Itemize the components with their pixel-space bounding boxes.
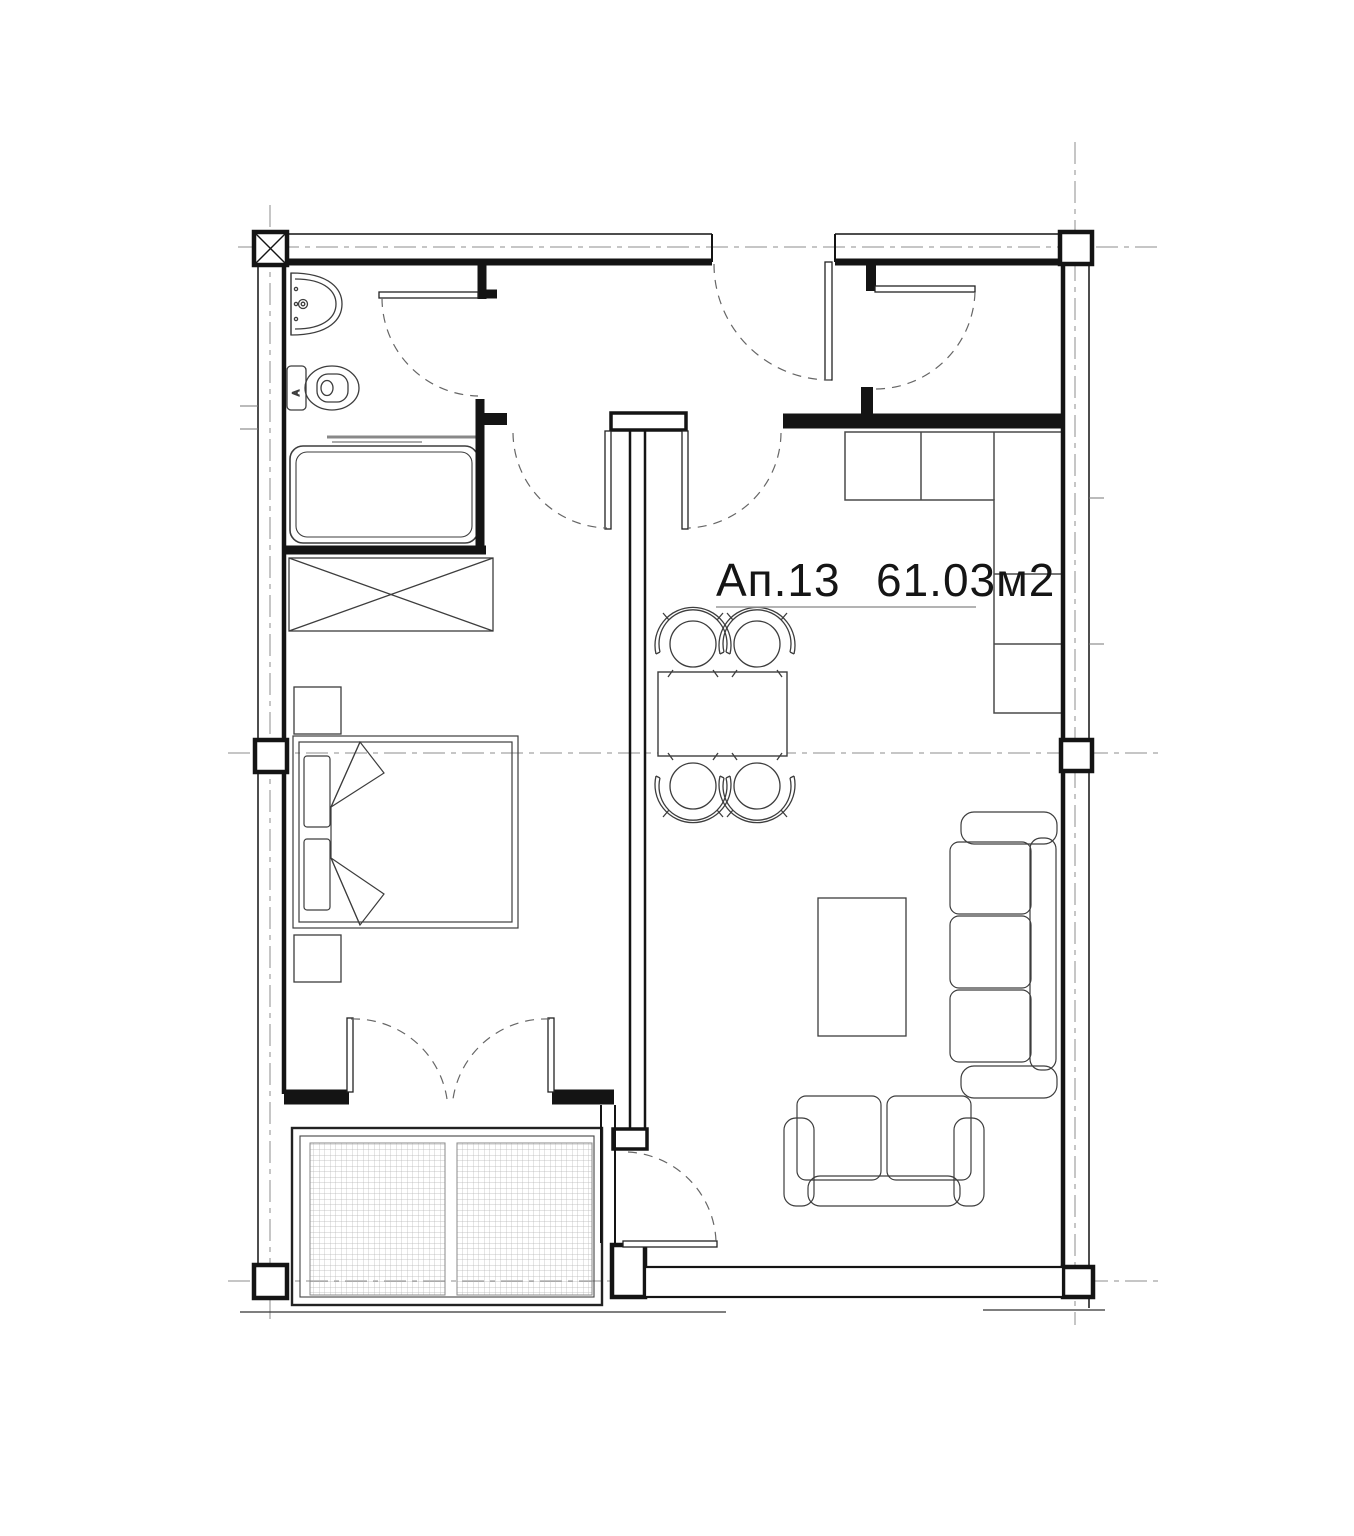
double-bed — [293, 736, 518, 928]
living-room-door-leaf — [682, 431, 688, 529]
area-label: 61.03м2 — [876, 554, 1055, 606]
column-bottom-right — [1063, 1267, 1093, 1297]
column-mid-left — [255, 740, 287, 772]
bedroom-door-leaf — [605, 431, 611, 529]
apartment-label: Ап.13 — [716, 554, 841, 606]
nightstand-bottom — [294, 935, 341, 982]
french-door-leaf-right — [548, 1018, 554, 1092]
column-mid-right — [1061, 740, 1092, 771]
dining-table — [658, 672, 787, 756]
entry-door-leaf — [825, 262, 832, 380]
floor-plan-page: A — [0, 0, 1354, 1536]
floor-plan-drawing: A — [0, 0, 1354, 1536]
nightstand-top — [294, 687, 341, 734]
column-top-left — [254, 232, 287, 265]
columns — [254, 232, 1093, 1298]
sofa-2-seat — [784, 1096, 984, 1206]
balcony-glazing-right — [457, 1143, 592, 1295]
balcony — [292, 1128, 602, 1305]
french-door-leaf-left — [347, 1018, 353, 1092]
plan-labels: Ап.13 61.03м2 — [716, 554, 1055, 607]
column-bottom-left — [254, 1265, 287, 1298]
sofa-3-seat — [950, 812, 1057, 1098]
living-room-window — [645, 1267, 1063, 1297]
bathroom-door-leaf — [379, 292, 478, 298]
toilet-marker: A — [291, 390, 301, 396]
storage-door-leaf — [875, 286, 975, 292]
balcony-door-leaf — [623, 1241, 717, 1247]
column-top-right — [1060, 232, 1092, 264]
sink — [291, 273, 342, 335]
column-window-left — [612, 1245, 645, 1297]
balcony-glazing-left — [310, 1143, 445, 1295]
bathtub — [290, 437, 478, 543]
toilet: A — [287, 366, 359, 410]
coffee-table — [818, 898, 906, 1036]
wardrobe — [289, 558, 493, 631]
